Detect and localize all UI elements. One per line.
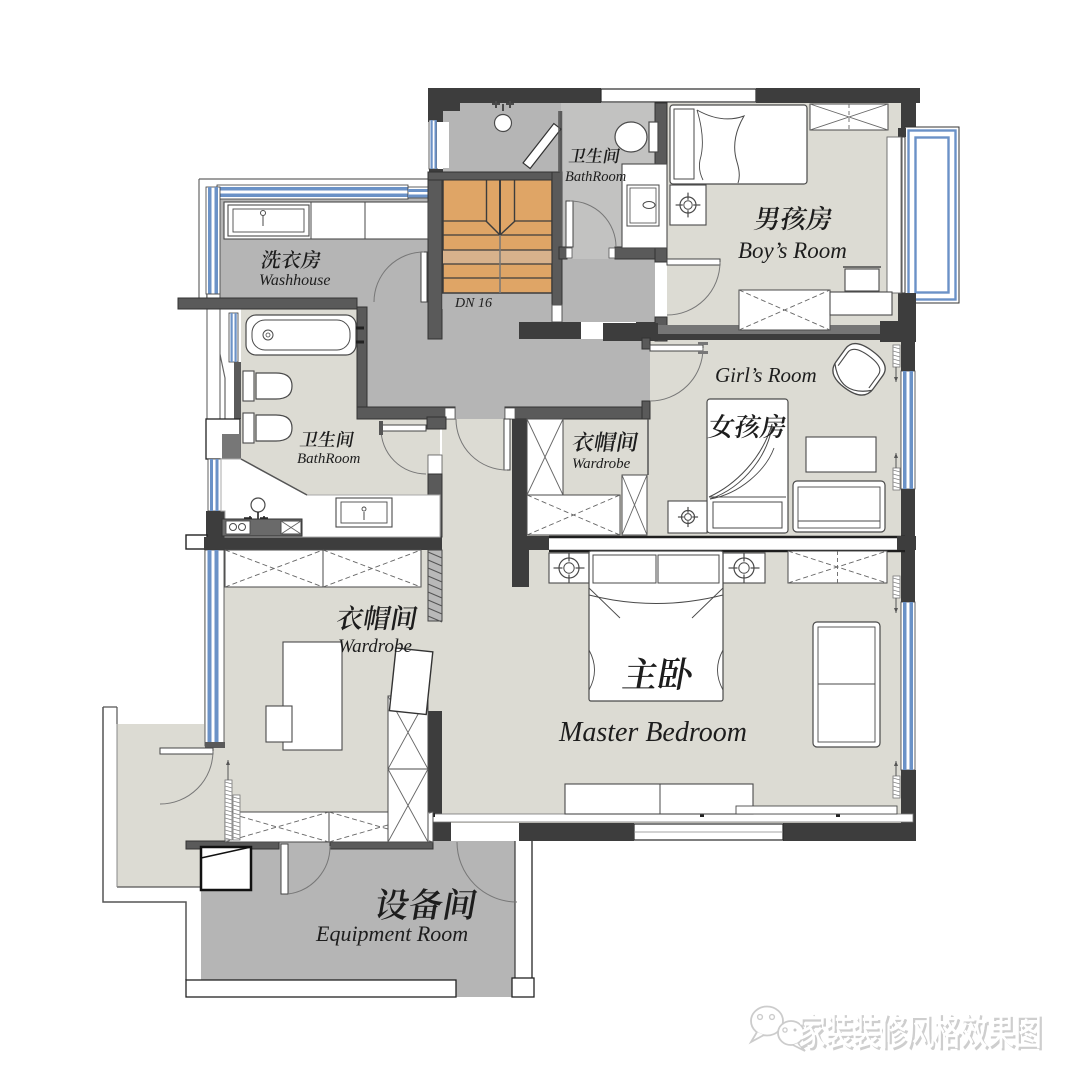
- svg-text:Boy’s Room: Boy’s Room: [738, 238, 847, 263]
- svg-text:Master Bedroom: Master Bedroom: [558, 717, 747, 748]
- svg-text:Wardrobe: Wardrobe: [338, 636, 412, 657]
- svg-text:Wardrobe: Wardrobe: [572, 456, 631, 472]
- svg-text:BathRoom: BathRoom: [565, 169, 626, 185]
- svg-text:Girl’s Room: Girl’s Room: [715, 363, 817, 387]
- svg-text:DN 16: DN 16: [454, 296, 492, 311]
- svg-text:Equipment Room: Equipment Room: [315, 921, 468, 946]
- svg-text:Washhouse: Washhouse: [259, 272, 330, 289]
- svg-text:BathRoom: BathRoom: [297, 451, 360, 467]
